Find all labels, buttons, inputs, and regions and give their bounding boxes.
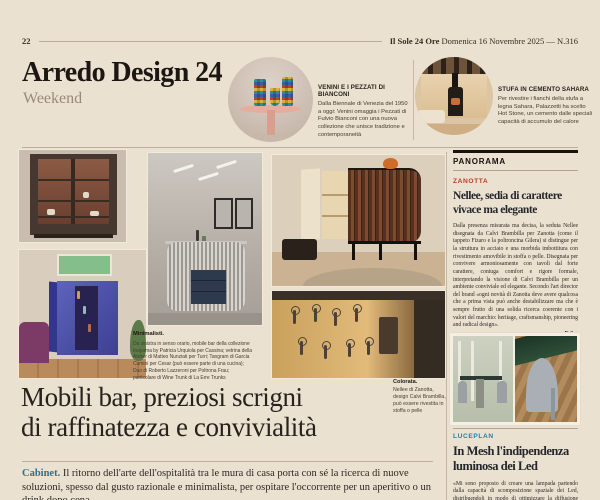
- panorama-column: PANORAMA ZANOTTA Nellee, sedia di caratt…: [453, 150, 578, 344]
- interior-panel: [453, 336, 513, 422]
- brief-sahara-title: STUFA IN CEMENTO SAHARA: [498, 86, 596, 93]
- masthead: 22 Il Sole 24 Ore Domenica 16 Novembre 2…: [22, 36, 578, 46]
- framed-picture: [214, 198, 233, 230]
- standfirst-text: Il ritorno dell'arte dell'ospitalità tra…: [22, 468, 431, 500]
- chair: [497, 381, 507, 403]
- zanotta-headline: Nellee, sedia di carattere vivace ma ele…: [453, 189, 578, 217]
- article-headline: Mobili bar, preziosi scrigni di raffinat…: [21, 382, 317, 442]
- paper-name: Il Sole 24 Ore: [390, 36, 440, 46]
- open-door: [301, 169, 320, 241]
- firebox: [451, 98, 460, 106]
- zanotta-body: Dalla presenza misurata ma decisa, la se…: [453, 223, 578, 330]
- issue-info: Domenica 16 Novembre 2025 — N.316: [442, 36, 578, 46]
- caption-label: Colorata.: [393, 379, 450, 387]
- bar-tool-icon: [334, 312, 337, 326]
- sahara-stove-photo: [415, 57, 493, 135]
- bar-tool-icon: [367, 341, 370, 355]
- panorama-rule: [453, 170, 578, 171]
- patchwork-cup: [270, 88, 280, 107]
- cabinet-plinth: [34, 234, 113, 239]
- masthead-rule: [39, 41, 382, 42]
- caption-label: Minimalisti.: [133, 331, 253, 339]
- purple-armchair: [19, 322, 49, 363]
- section-title: Arredo Design 24: [22, 57, 222, 89]
- side-table: [282, 239, 317, 260]
- bar-tool-icon: [300, 341, 303, 355]
- photo-rosewood-bar-cabinet: [272, 155, 445, 286]
- caption-text: Nellee di Zanotta, design Calvi Brambill…: [393, 387, 446, 414]
- brief-venini-text: Dalla Biennale di Venezia del 1950 a ogg…: [318, 101, 408, 139]
- chair-leg: [551, 388, 555, 421]
- framed-picture: [235, 198, 254, 230]
- luceplan-headline: In Mesh l'indipendenza luminosa dei Led: [453, 444, 578, 475]
- brief-divider: [413, 60, 414, 140]
- bar-tool-icon: [348, 343, 351, 357]
- brief-venini: VENINI E I PEZZATI DI BIANCONI Dalla Bie…: [318, 84, 408, 139]
- page-number: 22: [22, 36, 31, 46]
- luceplan-body: «Mi sono proposto di creare una lampada …: [453, 481, 578, 500]
- brief-sahara: STUFA IN CEMENTO SAHARA Per rivestire i …: [498, 86, 596, 127]
- headline-line1: Mobili bar, preziosi scrigni: [21, 382, 317, 412]
- photo-duo-poltrona-frau: [19, 250, 146, 378]
- photo-inayama-cassina: [148, 153, 262, 325]
- cabinet-mullion: [71, 159, 74, 223]
- collage-caption: Minimalisti.Da sinistra in senso orario,…: [133, 331, 253, 381]
- section-subtitle: Weekend: [23, 90, 82, 108]
- bar-tool-icon: [314, 308, 317, 322]
- brief-venini-title: VENINI E I PEZZATI DI BIANCONI: [318, 84, 408, 98]
- luceplan-rule: [453, 428, 578, 429]
- header-rule: [22, 147, 578, 148]
- photo-nellee-zanotta: [450, 333, 580, 425]
- chair-detail-panel: [515, 336, 577, 422]
- brief-sahara-text: Per rivestire i fianchi della stufa a le…: [498, 96, 596, 127]
- floor: [148, 313, 262, 325]
- photo-wine-trunk-tools: [272, 291, 445, 378]
- article-standfirst: Cabinet. Il ritorno dell'arte dell'ospit…: [22, 467, 435, 500]
- table-pedestal: [476, 379, 484, 408]
- bottle: [196, 230, 199, 241]
- bar-tool-icon: [355, 308, 358, 322]
- counter-drawers: [191, 270, 225, 304]
- pedestal-stem: [267, 110, 275, 136]
- newspaper-page: 22 Il Sole 24 Ore Domenica 16 Novembre 2…: [0, 0, 600, 500]
- panorama-top-bar: [453, 150, 578, 153]
- tag-luceplan: LUCEPLAN: [453, 433, 578, 440]
- ceiling-light: [173, 164, 193, 173]
- ceiling-light: [198, 172, 218, 181]
- orange-glass-vase: [383, 158, 399, 170]
- venini-glasses-photo: [228, 57, 313, 142]
- tag-zanotta: ZANOTTA: [453, 178, 578, 185]
- ceiling-beams: [415, 57, 493, 74]
- bar-tool-icon: [293, 310, 296, 324]
- floor: [415, 124, 493, 135]
- caption-text: Da sinistra in senso orario, mobile bar …: [133, 341, 252, 381]
- trunk-top-edge: [272, 291, 445, 300]
- standfirst-rule: [22, 461, 433, 462]
- masthead-issue: Il Sole 24 Ore Domenica 16 Novembre 2025…: [390, 36, 578, 46]
- sidebar-photo-caption: Colorata.Nellee di Zanotta, design Calvi…: [393, 379, 450, 415]
- bar-tool-icon: [324, 345, 327, 359]
- luceplan-article: LUCEPLAN In Mesh l'indipendenza luminosa…: [453, 428, 578, 500]
- headline-line2: di raffinatezza e convivialità: [21, 412, 317, 442]
- sidebar-divider: [446, 152, 447, 500]
- bench: [418, 110, 445, 122]
- patchwork-vase: [282, 77, 294, 106]
- cabinet-interior: [322, 171, 348, 239]
- chair: [458, 381, 468, 403]
- panorama-header: PANORAMA: [453, 157, 578, 166]
- rosewood-cabinet: [348, 168, 421, 243]
- photo-vetrina-turri: [19, 150, 126, 242]
- wall-artwork: [57, 254, 112, 276]
- standfirst-label: Cabinet.: [22, 468, 60, 479]
- stove-pipe: [452, 73, 457, 89]
- leather-plaque: [379, 317, 398, 354]
- metal-base: [348, 241, 421, 244]
- patchwork-vase: [254, 79, 267, 106]
- ceiling-light: [216, 160, 236, 169]
